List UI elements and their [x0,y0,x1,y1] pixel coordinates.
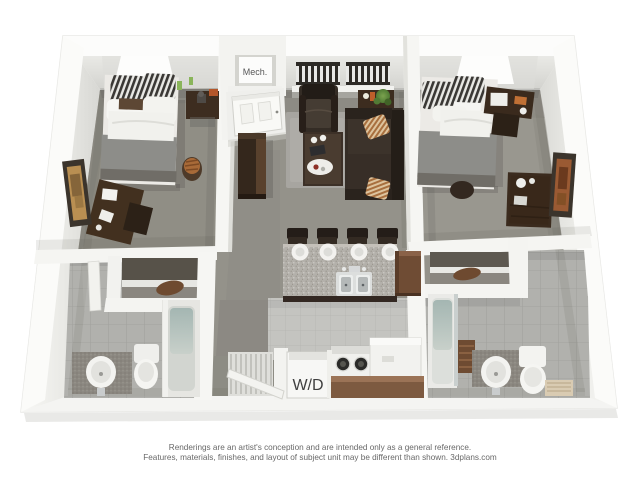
svg-text:Features, materials, finishes,: Features, materials, finishes, and layou… [143,453,497,462]
svg-text:Renderings are an artist's con: Renderings are an artist's conception an… [169,443,471,452]
svg-text:W/D: W/D [292,377,323,394]
svg-text:Mech.: Mech. [243,67,268,77]
